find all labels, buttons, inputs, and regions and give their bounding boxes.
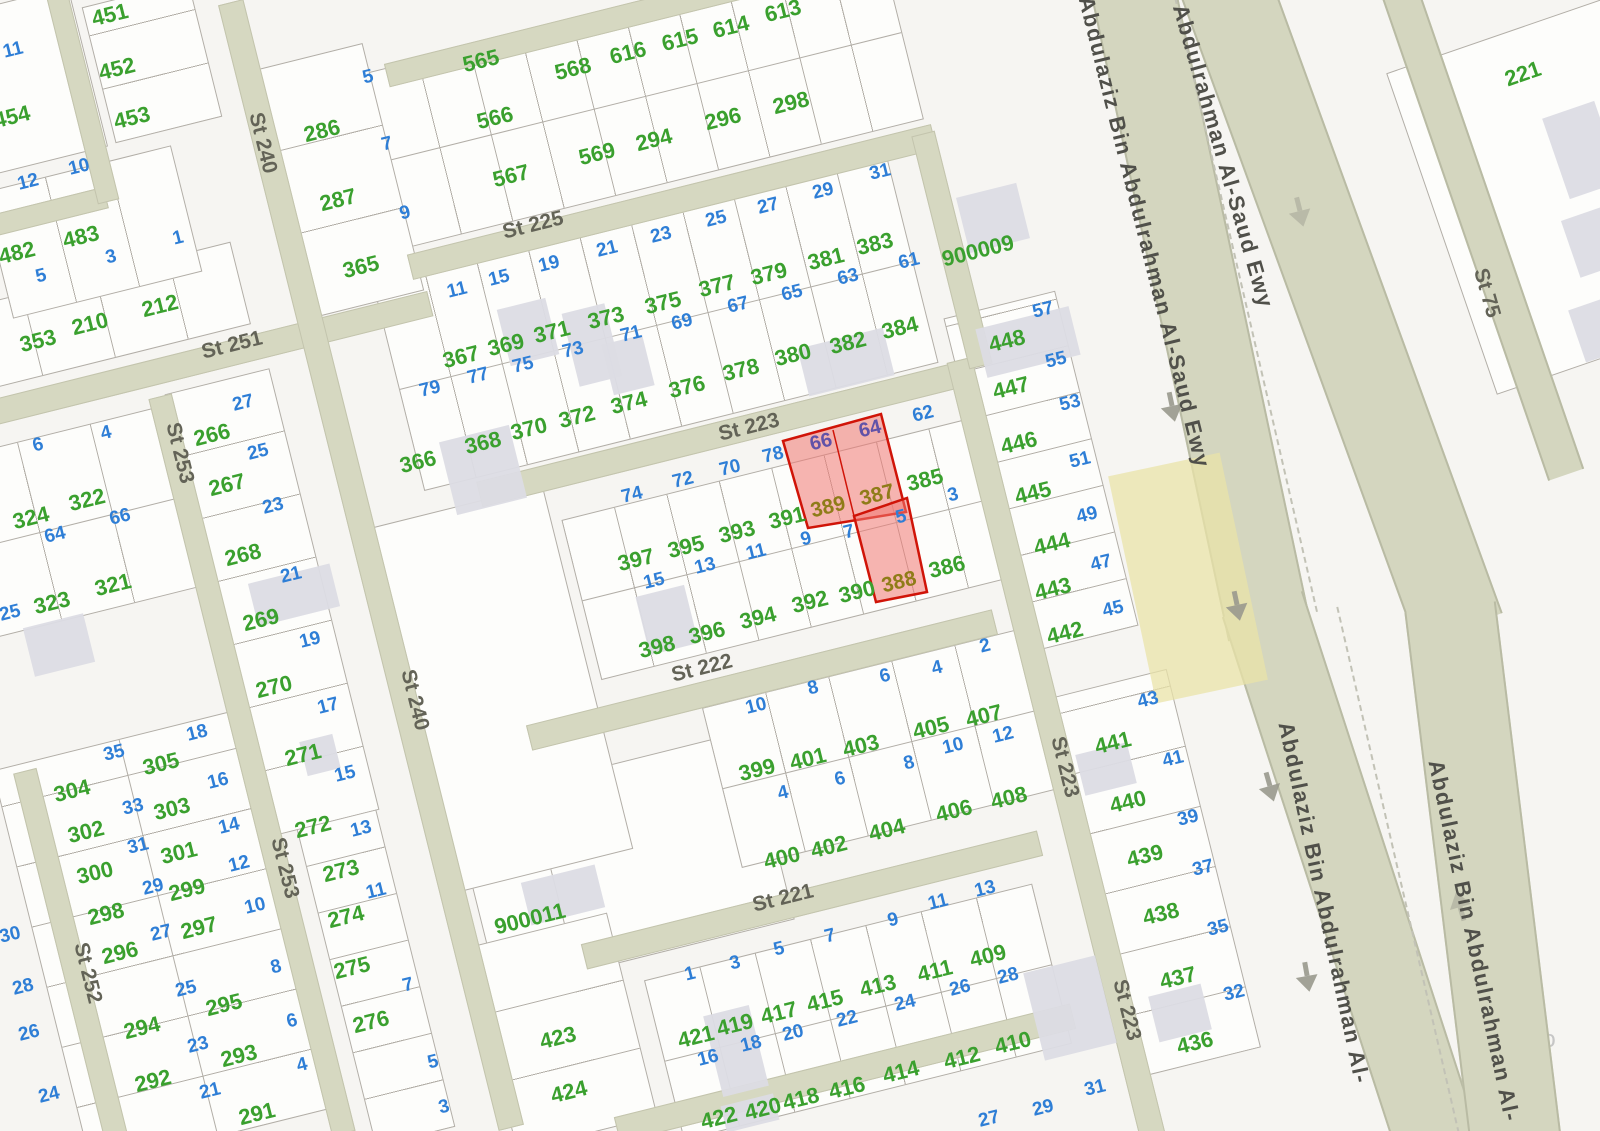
house-number-label: 31 [125,834,150,858]
house-number-label: 77 [465,364,490,388]
house-number-label: 21 [594,237,619,261]
house-number-label: 16 [695,1046,720,1070]
house-number-label: 79 [417,377,442,401]
house-number-label: 70 [717,456,742,480]
house-number-label: 11 [744,540,768,563]
house-number-label: 73 [560,338,585,362]
house-number-label: 57 [1030,298,1055,322]
house-number-label: 19 [536,252,561,276]
house-number-label: 11 [1,38,25,61]
parcel-number-label: 418 [781,1084,822,1114]
house-number-label: 22 [834,1007,859,1031]
house-number-label: 10 [940,734,965,758]
map-canvas[interactable]: Acti Go to 45145245345428628736548348235… [0,0,1600,1131]
house-number-label: 30 [0,923,23,947]
house-number-label: 29 [1030,1096,1055,1120]
house-number-label: 63 [835,265,860,289]
parcel-number-label: 402 [809,832,850,862]
house-number-label: 72 [670,468,695,492]
house-number-label: 29 [810,179,835,203]
house-number-label: 13 [972,877,997,901]
house-number-label: 64 [42,523,67,547]
house-number-label: 26 [947,976,972,1000]
corner-unit-number-label: 66 [808,430,834,455]
house-number-label: 67 [725,293,750,317]
house-number-label: 43 [1135,688,1160,712]
house-number-label: 29 [140,875,165,899]
house-number-label: 12 [990,723,1015,747]
parcel-number-label: 442 [1045,618,1086,648]
house-number-label: 31 [1082,1076,1107,1100]
house-number-label: 35 [101,741,126,765]
house-number-label: 13 [692,554,717,578]
house-number-label: 24 [892,991,917,1015]
parcel-number-label: 406 [934,796,975,826]
house-number-label: 32 [1221,981,1246,1005]
house-number-label: 21 [197,1079,222,1103]
parcel-number-label: 408 [989,783,1030,813]
corner-unit-number-label: 64 [857,417,883,442]
house-number-label: 15 [332,762,357,786]
house-number-label: 23 [648,223,673,247]
house-number-label: 62 [910,402,935,426]
parcel-number-label: 400 [762,843,803,873]
house-number-label: 69 [669,310,694,334]
house-number-label: 24 [36,1083,61,1107]
house-number-label: 10 [66,155,91,179]
house-number-label: 31 [867,160,892,184]
house-number-label: 28 [995,964,1020,988]
house-number-label: 11 [364,879,388,902]
house-number-label: 19 [297,628,322,652]
house-number-label: 35 [1205,916,1230,940]
house-number-label: 20 [780,1021,805,1045]
house-number-label: 27 [755,194,780,218]
house-number-label: 71 [618,322,643,346]
house-number-label: 45 [1100,597,1125,621]
house-number-label: 14 [216,814,241,838]
house-number-label: 25 [703,207,728,231]
house-number-label: 18 [738,1032,763,1056]
house-number-label: 49 [1074,503,1099,527]
house-number-label: 66 [107,505,132,529]
house-number-label: 21 [278,563,303,587]
house-number-label: 13 [348,817,373,841]
house-number-label: 33 [120,795,145,819]
house-number-label: 25 [173,977,198,1001]
house-number-label: 11 [445,278,469,301]
house-number-label: 78 [760,443,785,467]
house-number-label: 25 [245,440,270,464]
house-number-label: 15 [641,569,666,593]
parcel-number-label: 412 [942,1043,983,1073]
house-number-label: 37 [1190,856,1215,880]
house-number-label: 10 [242,894,267,918]
house-number-label: 47 [1088,551,1113,575]
house-number-label: 26 [16,1021,41,1045]
parcel-number-label: 404 [867,815,908,845]
house-number-label: 16 [205,769,230,793]
house-number-label: 23 [185,1033,210,1057]
house-number-label: 53 [1057,391,1082,415]
house-number-label: 61 [896,249,921,273]
house-number-label: 55 [1043,348,1068,372]
house-number-label: 74 [619,483,644,507]
house-number-label: 27 [148,921,173,945]
house-number-label: 27 [230,391,255,415]
direction-arrow-icon [1292,960,1321,996]
house-number-label: 51 [1067,448,1092,472]
house-number-label: 23 [260,494,285,518]
house-number-label: 18 [184,721,209,745]
parcel-number-label: 291 [237,1099,278,1129]
house-number-label: 41 [1160,747,1185,771]
house-number-label: 12 [15,170,40,194]
house-number-label: 28 [10,975,35,999]
house-number-label: 65 [779,281,804,305]
house-number-label: 39 [1175,806,1200,830]
parcel-number-label: 422 [699,1103,740,1131]
house-number-label: 75 [510,353,535,377]
parcel-number-label: 416 [827,1073,868,1103]
house-number-label: 12 [226,852,251,876]
house-number-label: 17 [315,694,340,718]
house-number-label: 27 [976,1107,1001,1131]
house-number-label: 11 [926,890,950,913]
house-number-label: 10 [743,694,768,718]
house-number-label: 15 [486,266,511,290]
